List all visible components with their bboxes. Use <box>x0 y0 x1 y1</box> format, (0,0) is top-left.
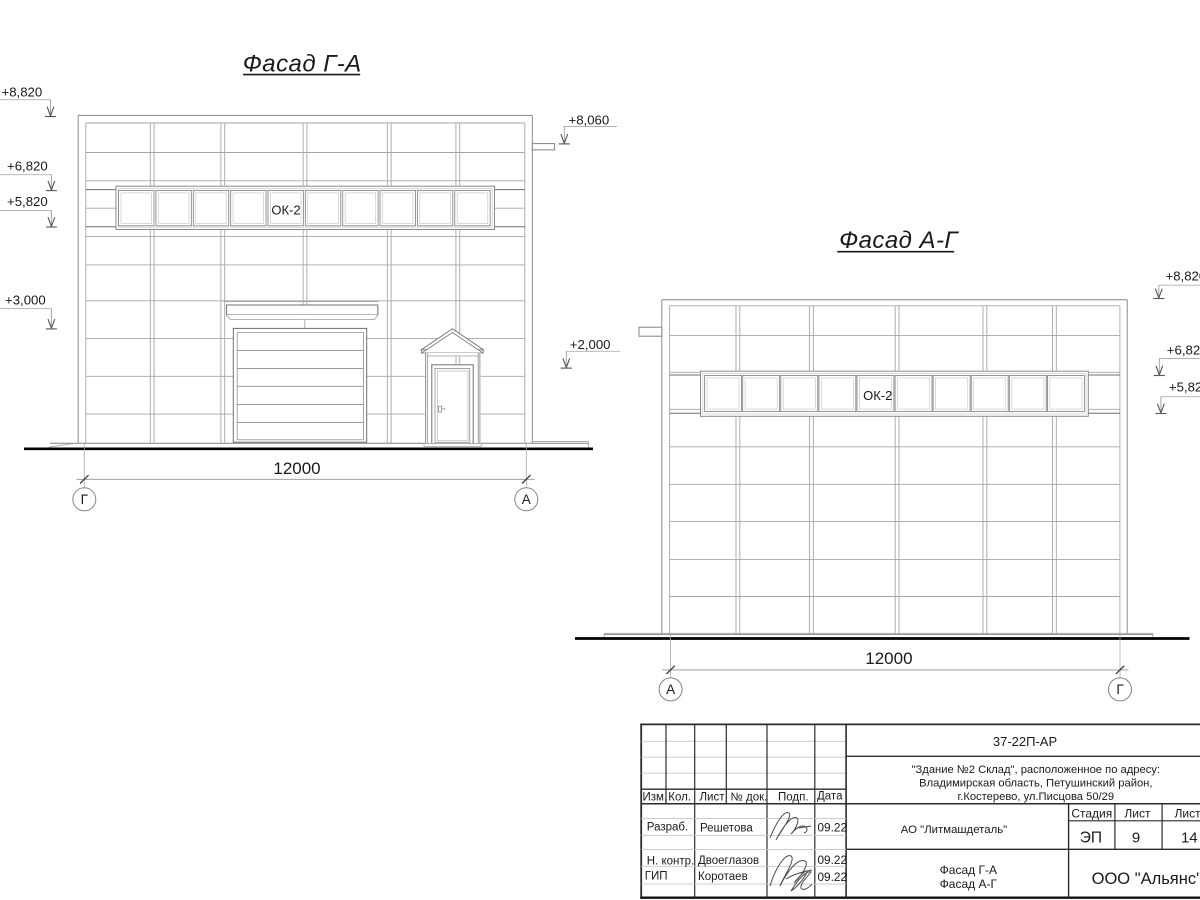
svg-text:Владимирская область, Петушинс: Владимирская область, Петушинский район, <box>919 778 1152 790</box>
svg-text:+8,060: +8,060 <box>569 113 610 128</box>
svg-text:Фасад А-Г: Фасад А-Г <box>940 877 998 891</box>
svg-text:ОК-2: ОК-2 <box>271 202 300 217</box>
svg-text:Подп.: Подп. <box>778 791 809 803</box>
svg-text:Н. контр.: Н. контр. <box>647 855 694 867</box>
svg-text:Фасад Г-А: Фасад Г-А <box>940 863 997 877</box>
svg-text:Лист: Лист <box>1124 807 1151 821</box>
svg-text:Г: Г <box>1116 682 1124 697</box>
svg-text:+6,820: +6,820 <box>1167 342 1200 357</box>
svg-text:Г: Г <box>81 492 89 507</box>
svg-text:+2,000: +2,000 <box>570 337 611 352</box>
svg-text:09.22: 09.22 <box>818 870 848 884</box>
svg-text:ООО "Альянс": ООО "Альянс" <box>1092 870 1200 888</box>
svg-text:Решетова: Решетова <box>700 822 753 834</box>
svg-text:Изм.: Изм. <box>643 791 668 803</box>
svg-text:Коротаев: Коротаев <box>698 871 748 883</box>
svg-text:09.22: 09.22 <box>818 853 848 867</box>
svg-text:+3,000: +3,000 <box>5 292 46 307</box>
svg-text:Стадия: Стадия <box>1071 807 1112 821</box>
svg-text:Разраб.: Разраб. <box>647 822 688 834</box>
svg-text:+5,820: +5,820 <box>7 194 48 209</box>
svg-text:+8,820: +8,820 <box>2 84 43 99</box>
svg-text:№ док.: № док. <box>731 791 768 803</box>
svg-text:Дата: Дата <box>817 791 843 803</box>
svg-text:А: А <box>522 492 531 507</box>
svg-text:14: 14 <box>1181 829 1198 846</box>
svg-text:09.22: 09.22 <box>818 821 848 835</box>
svg-text:А: А <box>666 682 675 697</box>
svg-text:Кол.: Кол. <box>668 791 691 803</box>
svg-text:Фасад Г-А: Фасад Г-А <box>243 51 362 78</box>
svg-text:9: 9 <box>1132 829 1140 846</box>
svg-text:ГИП: ГИП <box>645 870 668 882</box>
svg-text:г.Костерево, ул.Писцова 50/29: г.Костерево, ул.Писцова 50/29 <box>958 791 1115 803</box>
svg-text:Лист: Лист <box>700 791 726 803</box>
svg-text:Двоеглазов: Двоеглазов <box>698 855 759 867</box>
svg-text:12000: 12000 <box>273 459 320 478</box>
svg-text:ОК-2: ОК-2 <box>863 388 892 403</box>
svg-text:37-22П-АР: 37-22П-АР <box>993 734 1057 749</box>
svg-text:+5,820: +5,820 <box>1169 380 1200 395</box>
svg-text:АО "Литмашдеталь": АО "Литмашдеталь" <box>901 824 1007 836</box>
svg-text:12000: 12000 <box>865 649 912 668</box>
svg-text:"Здание №2 Склад", расположенн: "Здание №2 Склад", расположенное по адре… <box>912 764 1160 776</box>
svg-text:Фасад А-Г: Фасад А-Г <box>839 227 959 254</box>
svg-text:+6,820: +6,820 <box>7 158 48 173</box>
svg-text:+8,820: +8,820 <box>1166 268 1200 283</box>
svg-text:Листов: Листов <box>1175 807 1200 821</box>
svg-text:ЭП: ЭП <box>1080 829 1102 846</box>
